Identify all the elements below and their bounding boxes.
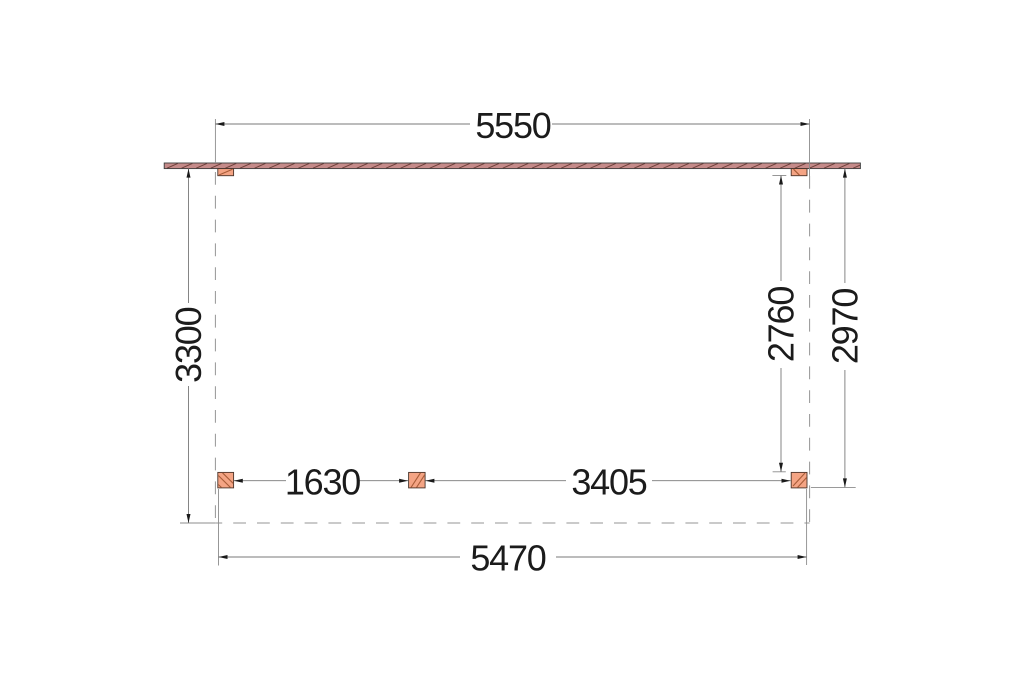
svg-text:5470: 5470: [470, 538, 545, 579]
svg-text:5550: 5550: [475, 105, 550, 146]
svg-text:3300: 3300: [168, 307, 209, 382]
svg-text:1630: 1630: [285, 462, 360, 503]
svg-text:3405: 3405: [571, 462, 646, 503]
svg-text:2760: 2760: [760, 287, 801, 362]
svg-text:2970: 2970: [824, 289, 865, 364]
